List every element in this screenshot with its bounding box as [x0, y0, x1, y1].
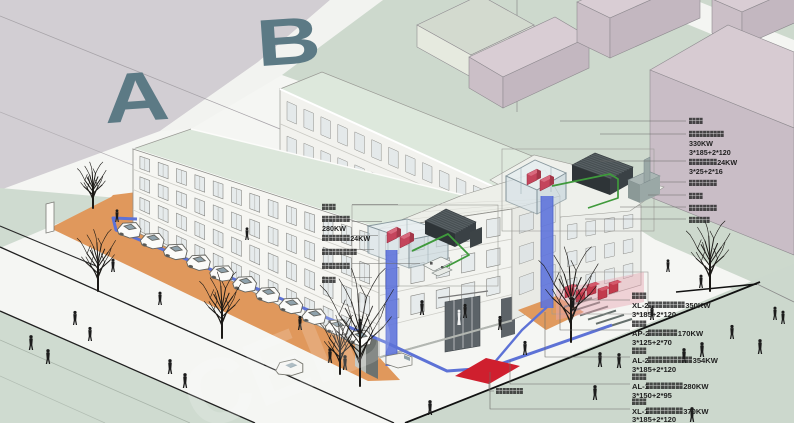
svg-text:3*185+2*120: 3*185+2*120: [689, 148, 731, 157]
svg-text:3*25+2*16: 3*25+2*16: [689, 167, 723, 176]
svg-text:330KW: 330KW: [689, 139, 713, 148]
svg-text:370KW: 370KW: [683, 407, 709, 416]
svg-text:AP-2: AP-2: [632, 329, 649, 338]
svg-text:XL-2: XL-2: [632, 301, 648, 310]
svg-text:3*185+2*120: 3*185+2*120: [632, 310, 676, 319]
svg-text:AL-2: AL-2: [632, 356, 649, 365]
svg-text:B: B: [254, 2, 323, 80]
svg-text:3*185+2*120: 3*185+2*120: [632, 415, 676, 423]
svg-text:24KW: 24KW: [350, 234, 370, 243]
svg-text:24KW: 24KW: [717, 158, 737, 167]
svg-text:280KW: 280KW: [322, 224, 346, 233]
svg-text:170KW: 170KW: [678, 329, 704, 338]
svg-text:354KW: 354KW: [693, 356, 719, 365]
svg-text:3*125+2*70: 3*125+2*70: [632, 338, 672, 347]
svg-text:350KW: 350KW: [685, 301, 711, 310]
svg-text:A: A: [101, 57, 172, 139]
svg-text:3*185+2*120: 3*185+2*120: [632, 365, 676, 374]
svg-text:280KW: 280KW: [683, 382, 709, 391]
